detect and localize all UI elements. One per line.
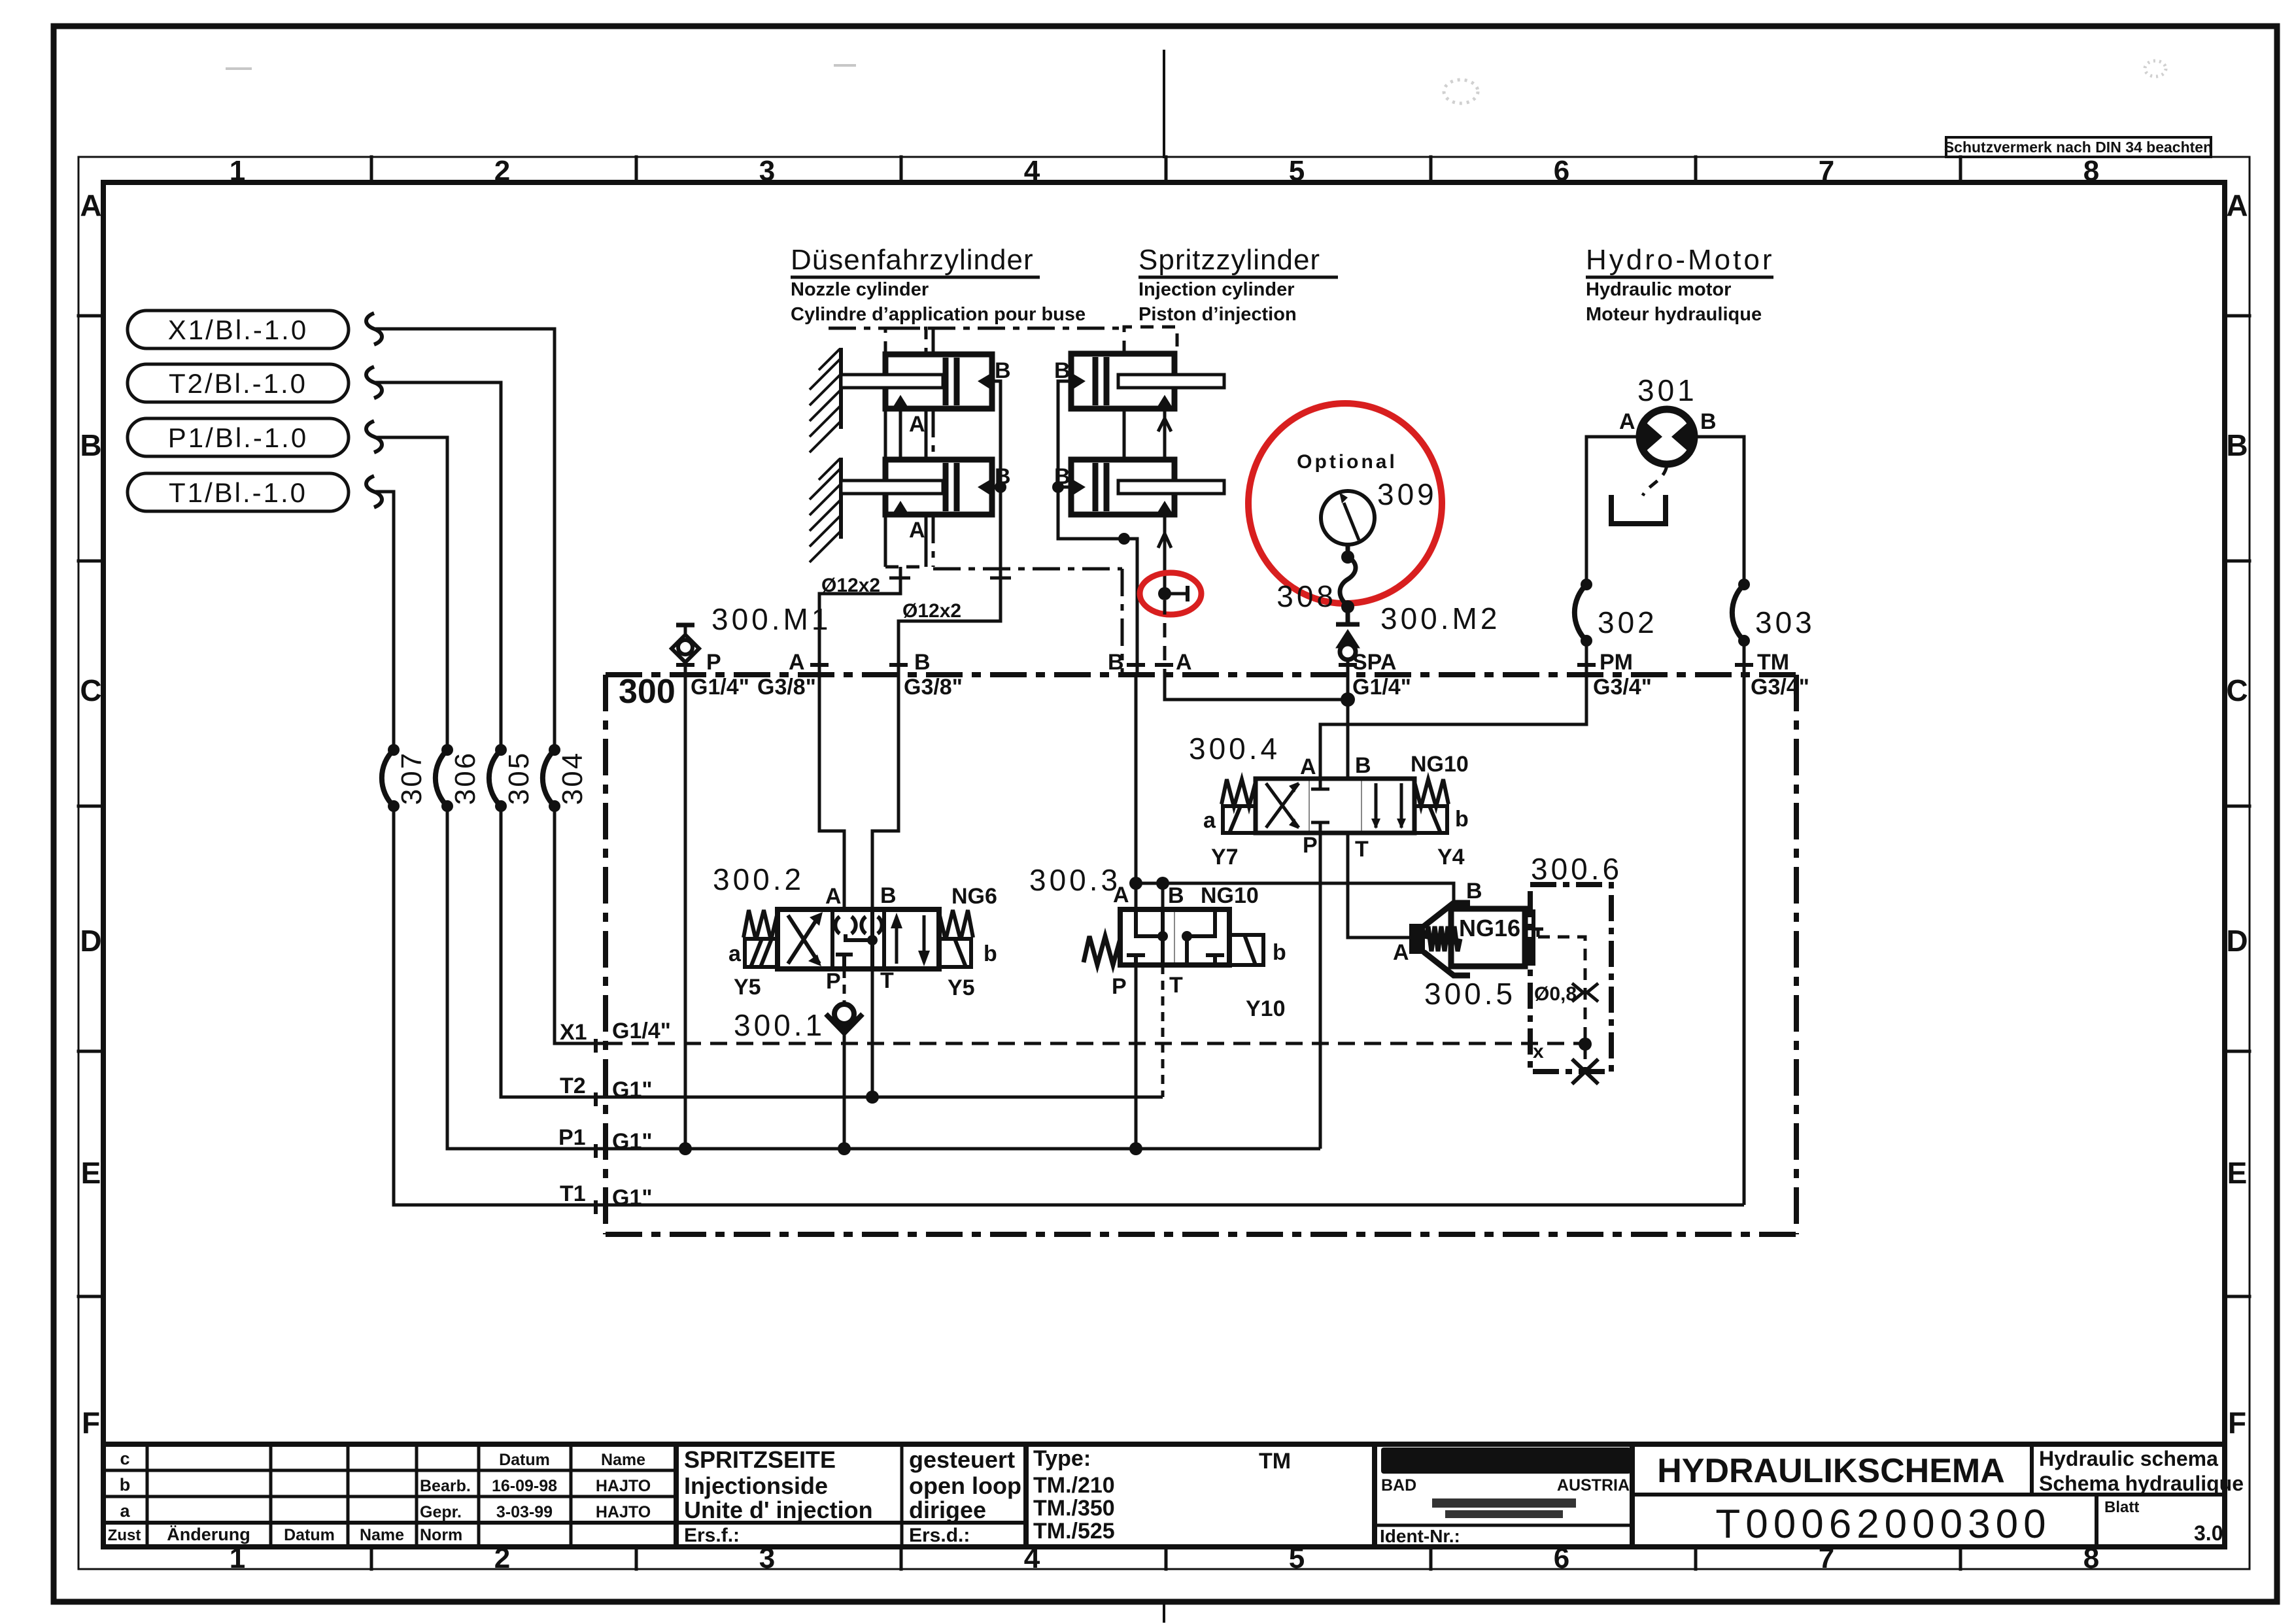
svg-text:TM./350: TM./350 xyxy=(1033,1496,1115,1521)
svg-text:Ø0,8: Ø0,8 xyxy=(1534,983,1577,1005)
svg-text:a: a xyxy=(1203,808,1216,833)
svg-text:C: C xyxy=(2226,673,2248,707)
svg-text:A: A xyxy=(80,188,101,222)
svg-text:300.1: 300.1 xyxy=(734,1008,825,1042)
svg-text:307: 307 xyxy=(396,751,428,805)
svg-text:Blatt: Blatt xyxy=(2104,1498,2139,1516)
svg-text:A: A xyxy=(1300,754,1316,779)
svg-text:301: 301 xyxy=(1637,373,1698,407)
svg-text:a: a xyxy=(728,941,742,966)
svg-text:P1: P1 xyxy=(558,1125,586,1150)
svg-text:G3/8": G3/8" xyxy=(904,675,963,700)
svg-text:G1/4": G1/4" xyxy=(691,675,749,700)
svg-text:AUSTRIA: AUSTRIA xyxy=(1557,1476,1630,1495)
svg-text:A: A xyxy=(1393,940,1409,965)
svg-text:308: 308 xyxy=(1276,579,1337,613)
svg-text:T: T xyxy=(1355,837,1369,862)
svg-text:C: C xyxy=(80,673,101,707)
svg-text:300.5: 300.5 xyxy=(1424,977,1516,1011)
svg-text:F: F xyxy=(2228,1406,2246,1440)
svg-text:Bearb.: Bearb. xyxy=(420,1477,471,1495)
svg-text:Y5: Y5 xyxy=(948,975,975,1000)
svg-text:300.M2: 300.M2 xyxy=(1380,601,1500,635)
svg-text:Gepr.: Gepr. xyxy=(420,1503,462,1521)
svg-text:Unite d' injection: Unite d' injection xyxy=(684,1497,873,1523)
svg-text:b: b xyxy=(984,941,997,966)
svg-text:16-09-98: 16-09-98 xyxy=(492,1477,557,1495)
svg-text:A: A xyxy=(909,412,925,437)
svg-text:300.3: 300.3 xyxy=(1029,863,1121,897)
svg-text:Optional: Optional xyxy=(1297,451,1397,473)
svg-text:3: 3 xyxy=(759,155,775,187)
svg-text:Spritzzylinder: Spritzzylinder xyxy=(1138,244,1320,276)
svg-text:T1: T1 xyxy=(560,1181,586,1206)
svg-text:306: 306 xyxy=(449,751,481,805)
svg-text:B: B xyxy=(1700,409,1717,434)
svg-text:Norm: Norm xyxy=(420,1526,462,1544)
svg-text:T: T xyxy=(880,968,894,993)
svg-text:A: A xyxy=(1176,650,1192,675)
svg-text:Ers.d.:: Ers.d.: xyxy=(909,1525,970,1546)
svg-text:Ø12x2: Ø12x2 xyxy=(902,600,961,622)
svg-text:Schutzvermerk nach DIN 34 beac: Schutzvermerk nach DIN 34 beachten xyxy=(1944,139,2212,156)
svg-text:7: 7 xyxy=(1819,155,1834,187)
svg-text:E: E xyxy=(2227,1156,2248,1190)
svg-text:SPRITZSEITE: SPRITZSEITE xyxy=(684,1446,836,1473)
svg-text:304: 304 xyxy=(556,751,589,805)
svg-text:B: B xyxy=(880,883,897,908)
svg-text:P: P xyxy=(706,650,721,675)
svg-text:1: 1 xyxy=(230,155,245,187)
svg-text:NG16: NG16 xyxy=(1459,915,1520,941)
svg-text:5: 5 xyxy=(1289,155,1305,187)
svg-text:b: b xyxy=(1273,940,1286,965)
svg-text:TM: TM xyxy=(1757,650,1789,675)
svg-text:G3/4": G3/4" xyxy=(1751,675,1809,700)
svg-text:300.4: 300.4 xyxy=(1189,732,1280,766)
svg-text:HYDRAULIKSCHEMA: HYDRAULIKSCHEMA xyxy=(1657,1452,2005,1490)
svg-text:P: P xyxy=(1112,974,1127,999)
svg-text:Y10: Y10 xyxy=(1246,996,1286,1021)
svg-text:Type:: Type: xyxy=(1033,1446,1091,1471)
svg-text:open loop: open loop xyxy=(909,1472,1021,1499)
svg-text:Name: Name xyxy=(601,1451,645,1469)
svg-text:Schema hydraulique: Schema hydraulique xyxy=(2039,1472,2244,1495)
svg-text:Düsenfahrzylinder: Düsenfahrzylinder xyxy=(791,244,1034,276)
svg-text:NG10: NG10 xyxy=(1411,752,1469,777)
svg-text:P: P xyxy=(1303,833,1318,858)
svg-text:3-03-99: 3-03-99 xyxy=(496,1503,553,1521)
svg-text:B: B xyxy=(1466,879,1482,904)
svg-text:B: B xyxy=(1054,358,1070,383)
svg-text:Name: Name xyxy=(360,1526,404,1544)
svg-text:Y4: Y4 xyxy=(1437,845,1465,870)
svg-text:Cylindre d’application pour bu: Cylindre d’application pour buse xyxy=(791,304,1086,325)
svg-text:Injection cylinder: Injection cylinder xyxy=(1138,279,1295,300)
svg-text:Ers.f.:: Ers.f.: xyxy=(684,1525,740,1546)
svg-text:TM: TM xyxy=(1259,1449,1291,1474)
svg-text:A: A xyxy=(1113,883,1129,907)
svg-text:BAD: BAD xyxy=(1381,1476,1416,1495)
svg-text:X1/Bl.-1.0: X1/Bl.-1.0 xyxy=(168,314,308,345)
svg-text:300.6: 300.6 xyxy=(1531,852,1622,886)
svg-text:Hydraulic motor: Hydraulic motor xyxy=(1586,279,1731,300)
svg-text:b: b xyxy=(1455,807,1469,832)
svg-text:A: A xyxy=(2226,188,2248,222)
svg-text:G1/4": G1/4" xyxy=(1352,675,1411,700)
svg-text:NG6: NG6 xyxy=(951,884,997,909)
svg-text:TM./525: TM./525 xyxy=(1033,1519,1115,1544)
svg-text:T2: T2 xyxy=(560,1074,586,1098)
svg-text:Ident-Nr.:: Ident-Nr.: xyxy=(1380,1526,1460,1546)
svg-text:T1/Bl.-1.0: T1/Bl.-1.0 xyxy=(169,477,307,508)
svg-text:B: B xyxy=(995,358,1011,383)
svg-text:SPA: SPA xyxy=(1352,650,1396,675)
svg-text:P: P xyxy=(826,969,841,994)
svg-text:gesteuert: gesteuert xyxy=(909,1446,1015,1473)
svg-text:Nozzle cylinder: Nozzle cylinder xyxy=(791,279,929,300)
svg-text:302: 302 xyxy=(1598,605,1658,639)
svg-text:305: 305 xyxy=(503,751,535,805)
svg-text:E: E xyxy=(81,1156,101,1190)
svg-text:G1/4": G1/4" xyxy=(612,1019,671,1043)
svg-text:Moteur hydraulique: Moteur hydraulique xyxy=(1586,304,1762,325)
svg-text:300: 300 xyxy=(619,673,676,711)
svg-text:c: c xyxy=(120,1449,129,1468)
svg-text:dirigee: dirigee xyxy=(909,1497,986,1523)
svg-text:T00062000300: T00062000300 xyxy=(1715,1502,2051,1547)
svg-text:Datum: Datum xyxy=(499,1451,550,1469)
svg-text:D: D xyxy=(80,924,101,958)
svg-text:F: F xyxy=(82,1406,100,1440)
svg-text:Hydraulic schema: Hydraulic schema xyxy=(2039,1447,2218,1470)
svg-text:PM: PM xyxy=(1600,650,1633,675)
svg-text:X1: X1 xyxy=(560,1020,587,1045)
svg-text:4: 4 xyxy=(1024,155,1040,187)
svg-text:Injectionside: Injectionside xyxy=(684,1472,828,1499)
svg-text:B: B xyxy=(914,650,931,675)
svg-text:Datum: Datum xyxy=(284,1526,335,1544)
svg-text:8: 8 xyxy=(2083,155,2099,187)
svg-text:Y5: Y5 xyxy=(734,975,761,1000)
svg-text:300.M1: 300.M1 xyxy=(711,602,831,636)
svg-text:2: 2 xyxy=(494,155,510,187)
svg-text:HAJTO: HAJTO xyxy=(596,1503,651,1521)
svg-text:A: A xyxy=(909,518,925,543)
svg-text:G3/4": G3/4" xyxy=(1593,675,1652,700)
svg-text:B: B xyxy=(2226,428,2248,462)
svg-text:B: B xyxy=(1168,883,1184,908)
svg-text:b: b xyxy=(120,1475,131,1495)
svg-text:B: B xyxy=(1355,753,1371,778)
svg-text:6: 6 xyxy=(1554,155,1569,187)
svg-text:HAJTO: HAJTO xyxy=(596,1477,651,1495)
svg-text:3.0: 3.0 xyxy=(2194,1521,2223,1545)
svg-text:a: a xyxy=(120,1501,130,1521)
svg-text:Piston d’injection: Piston d’injection xyxy=(1138,304,1297,325)
svg-text:B: B xyxy=(80,428,101,462)
svg-text:Änderung: Änderung xyxy=(167,1525,250,1544)
svg-text:A: A xyxy=(1619,409,1635,434)
svg-text:309: 309 xyxy=(1377,477,1437,511)
svg-text:303: 303 xyxy=(1755,605,1815,639)
svg-text:G3/8": G3/8" xyxy=(757,675,816,700)
svg-text:T: T xyxy=(1169,973,1183,998)
svg-text:P1/Bl.-1.0: P1/Bl.-1.0 xyxy=(168,422,308,453)
svg-text:NG10: NG10 xyxy=(1201,883,1259,908)
svg-text:TM./210: TM./210 xyxy=(1033,1473,1115,1498)
svg-text:Ø12x2: Ø12x2 xyxy=(821,575,880,596)
svg-text:Hydro-Motor: Hydro-Motor xyxy=(1586,244,1775,276)
svg-text:D: D xyxy=(2226,924,2248,958)
svg-text:T2/Bl.-1.0: T2/Bl.-1.0 xyxy=(169,368,307,399)
svg-text:Y7: Y7 xyxy=(1211,845,1239,870)
svg-text:300.2: 300.2 xyxy=(713,862,804,896)
svg-text:A: A xyxy=(825,884,842,909)
svg-text:A: A xyxy=(789,650,805,675)
svg-text:Zust: Zust xyxy=(108,1527,141,1544)
